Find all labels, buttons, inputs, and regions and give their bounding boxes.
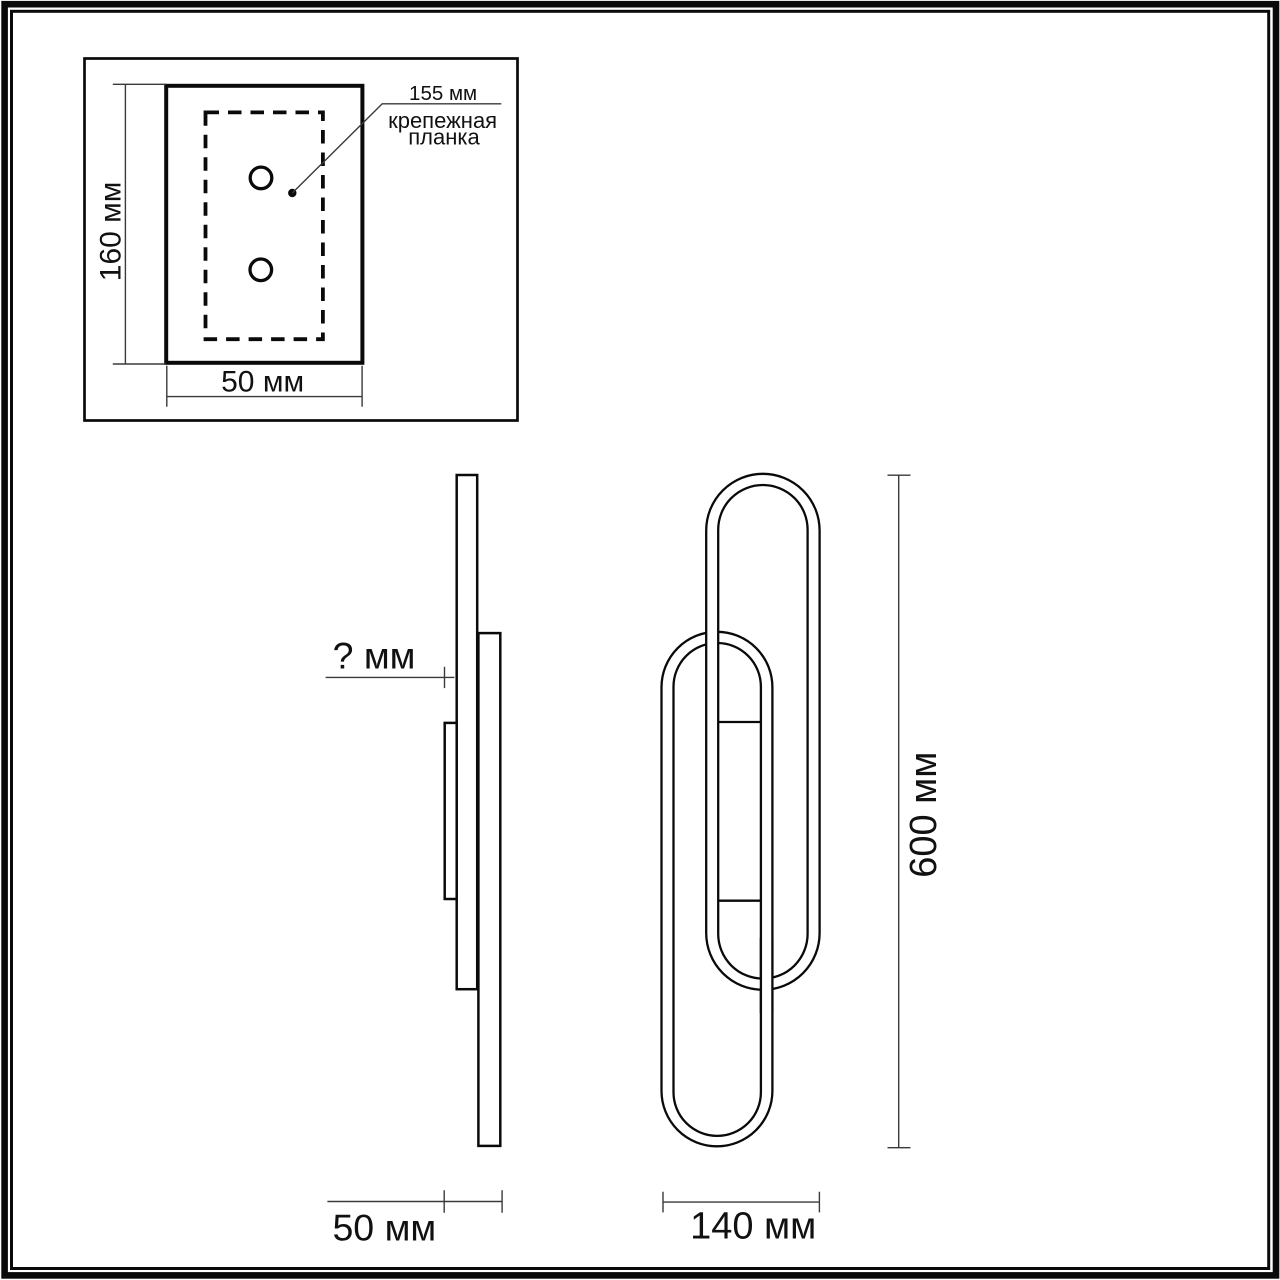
svg-text:160 мм: 160 мм bbox=[95, 182, 128, 282]
svg-text:? мм: ? мм bbox=[333, 635, 416, 677]
svg-text:50 мм: 50 мм bbox=[332, 1207, 436, 1249]
svg-text:планка: планка bbox=[408, 125, 480, 150]
svg-text:140 мм: 140 мм bbox=[690, 1206, 816, 1248]
svg-text:600 мм: 600 мм bbox=[903, 752, 945, 878]
svg-text:155 мм: 155 мм bbox=[409, 82, 477, 105]
svg-text:50 мм: 50 мм bbox=[221, 366, 304, 399]
